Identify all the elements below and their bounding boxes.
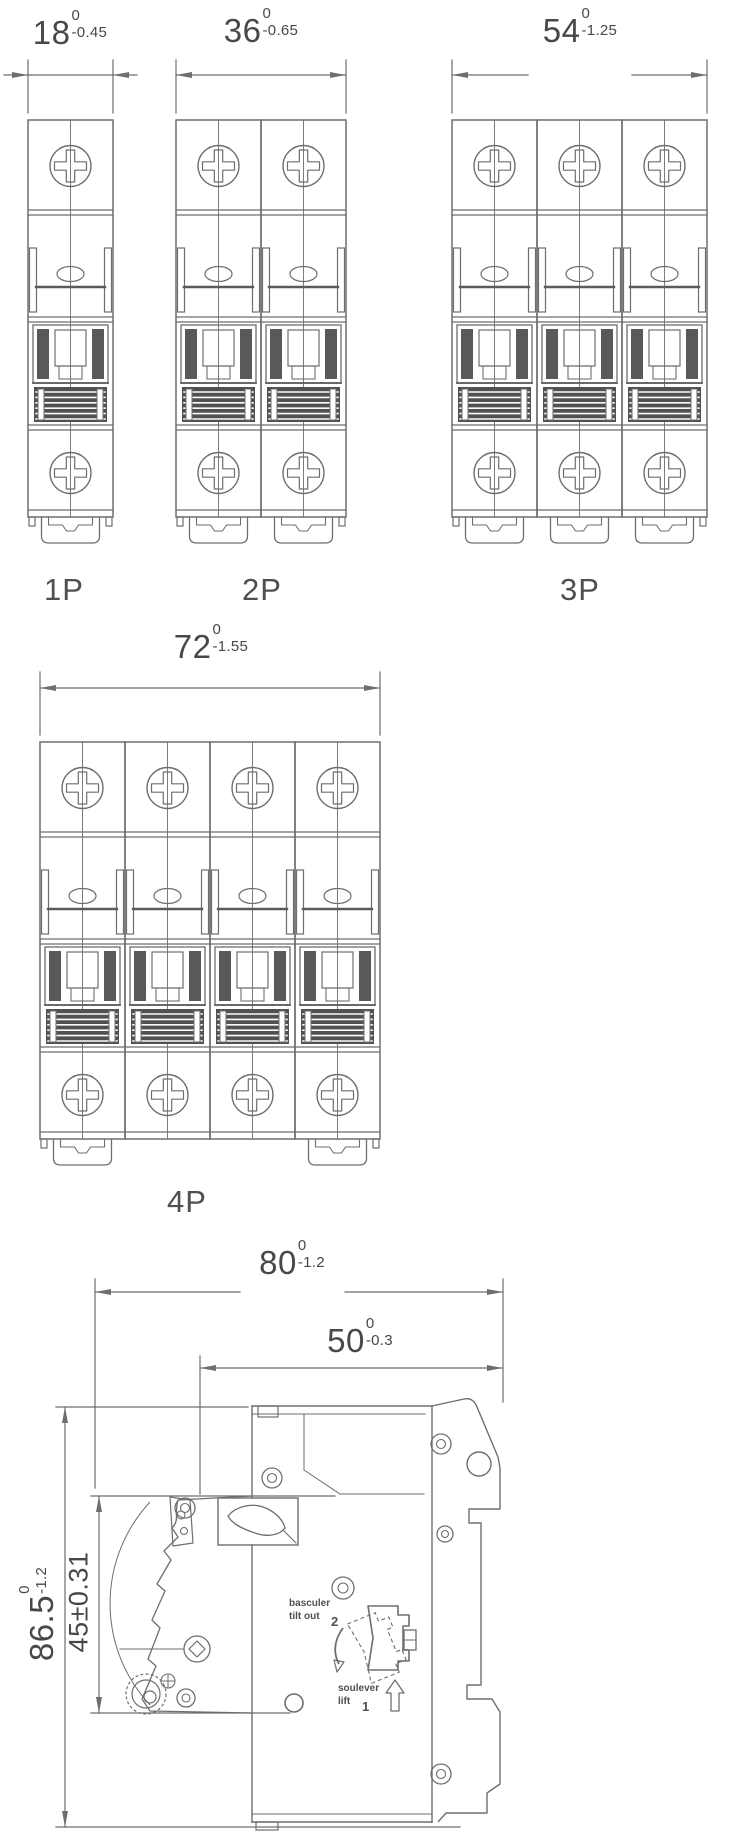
dim-overall-height: 86.5 0 -1.2 (25, 1567, 59, 1661)
annotation-lift: soulever lift (338, 1682, 379, 1708)
annotation-line: lift (338, 1695, 379, 1708)
pole-label-2p: 2P (242, 574, 282, 605)
annotation-line: soulever (338, 1682, 379, 1695)
dim-value: 72 (174, 630, 212, 663)
dim-tolerance: 0 -1.25 (582, 6, 618, 40)
dim-handle-height: 45±0.31 (66, 1552, 93, 1653)
dim-tolerance: 0 -1.55 (213, 622, 249, 656)
tolerance-lower: -1.55 (213, 639, 249, 656)
dim-width-4p: 72 0 -1.55 (174, 630, 248, 664)
dim-body-depth: 50 0 -0.3 (327, 1324, 393, 1358)
pole-label-4p: 4P (167, 1186, 207, 1217)
tolerance-lower: -1.2 (34, 1567, 51, 1594)
dim-value: 18 (33, 16, 71, 49)
dim-width-2p: 36 0 -0.65 (224, 14, 298, 48)
dim-overall-depth: 80 0 -1.2 (259, 1246, 325, 1280)
annotation-line: basculer (289, 1597, 330, 1610)
tolerance-lower: -1.2 (298, 1255, 325, 1272)
step-number-1: 1 (362, 1700, 369, 1713)
dim-value: 50 (327, 1324, 365, 1357)
dim-value: 45±0.31 (66, 1552, 93, 1653)
dim-tolerance: 0 -1.2 (298, 1238, 325, 1272)
annotation-tilt-out: basculer tilt out (289, 1597, 330, 1623)
tolerance-upper: 0 (263, 6, 299, 23)
tolerance-upper: 0 (72, 8, 108, 25)
dim-tolerance: 0 -0.3 (366, 1316, 393, 1350)
dim-value: 86.5 (25, 1595, 58, 1661)
dim-width-1p: 18 0 -0.45 (33, 16, 107, 50)
dim-value: 36 (224, 14, 262, 47)
dim-value: 54 (543, 14, 581, 47)
tolerance-upper: 0 (298, 1238, 325, 1255)
dim-width-3p: 54 0 -1.25 (543, 14, 617, 48)
tolerance-upper: 0 (366, 1316, 393, 1333)
technical-drawing-page: 18 0 -0.45 36 0 -0.65 54 0 -1.25 72 0 -1… (0, 0, 750, 1843)
dim-tolerance: 0 -1.2 (17, 1567, 51, 1594)
pole-label-3p: 3P (560, 574, 600, 605)
tolerance-lower: -0.65 (263, 23, 299, 40)
tolerance-upper: 0 (582, 6, 618, 23)
tolerance-lower: -0.45 (72, 25, 108, 42)
tolerance-lower: -0.3 (366, 1333, 393, 1350)
tolerance-lower: -1.25 (582, 23, 618, 40)
dim-tolerance: 0 -0.65 (263, 6, 299, 40)
dim-value: 80 (259, 1246, 297, 1279)
line-art (0, 0, 750, 1843)
dim-tolerance: 0 -0.45 (72, 8, 108, 42)
annotation-line: tilt out (289, 1610, 330, 1623)
step-number-2: 2 (331, 1615, 338, 1628)
tolerance-upper: 0 (17, 1567, 34, 1594)
pole-label-1p: 1P (44, 574, 84, 605)
tolerance-upper: 0 (213, 622, 249, 639)
